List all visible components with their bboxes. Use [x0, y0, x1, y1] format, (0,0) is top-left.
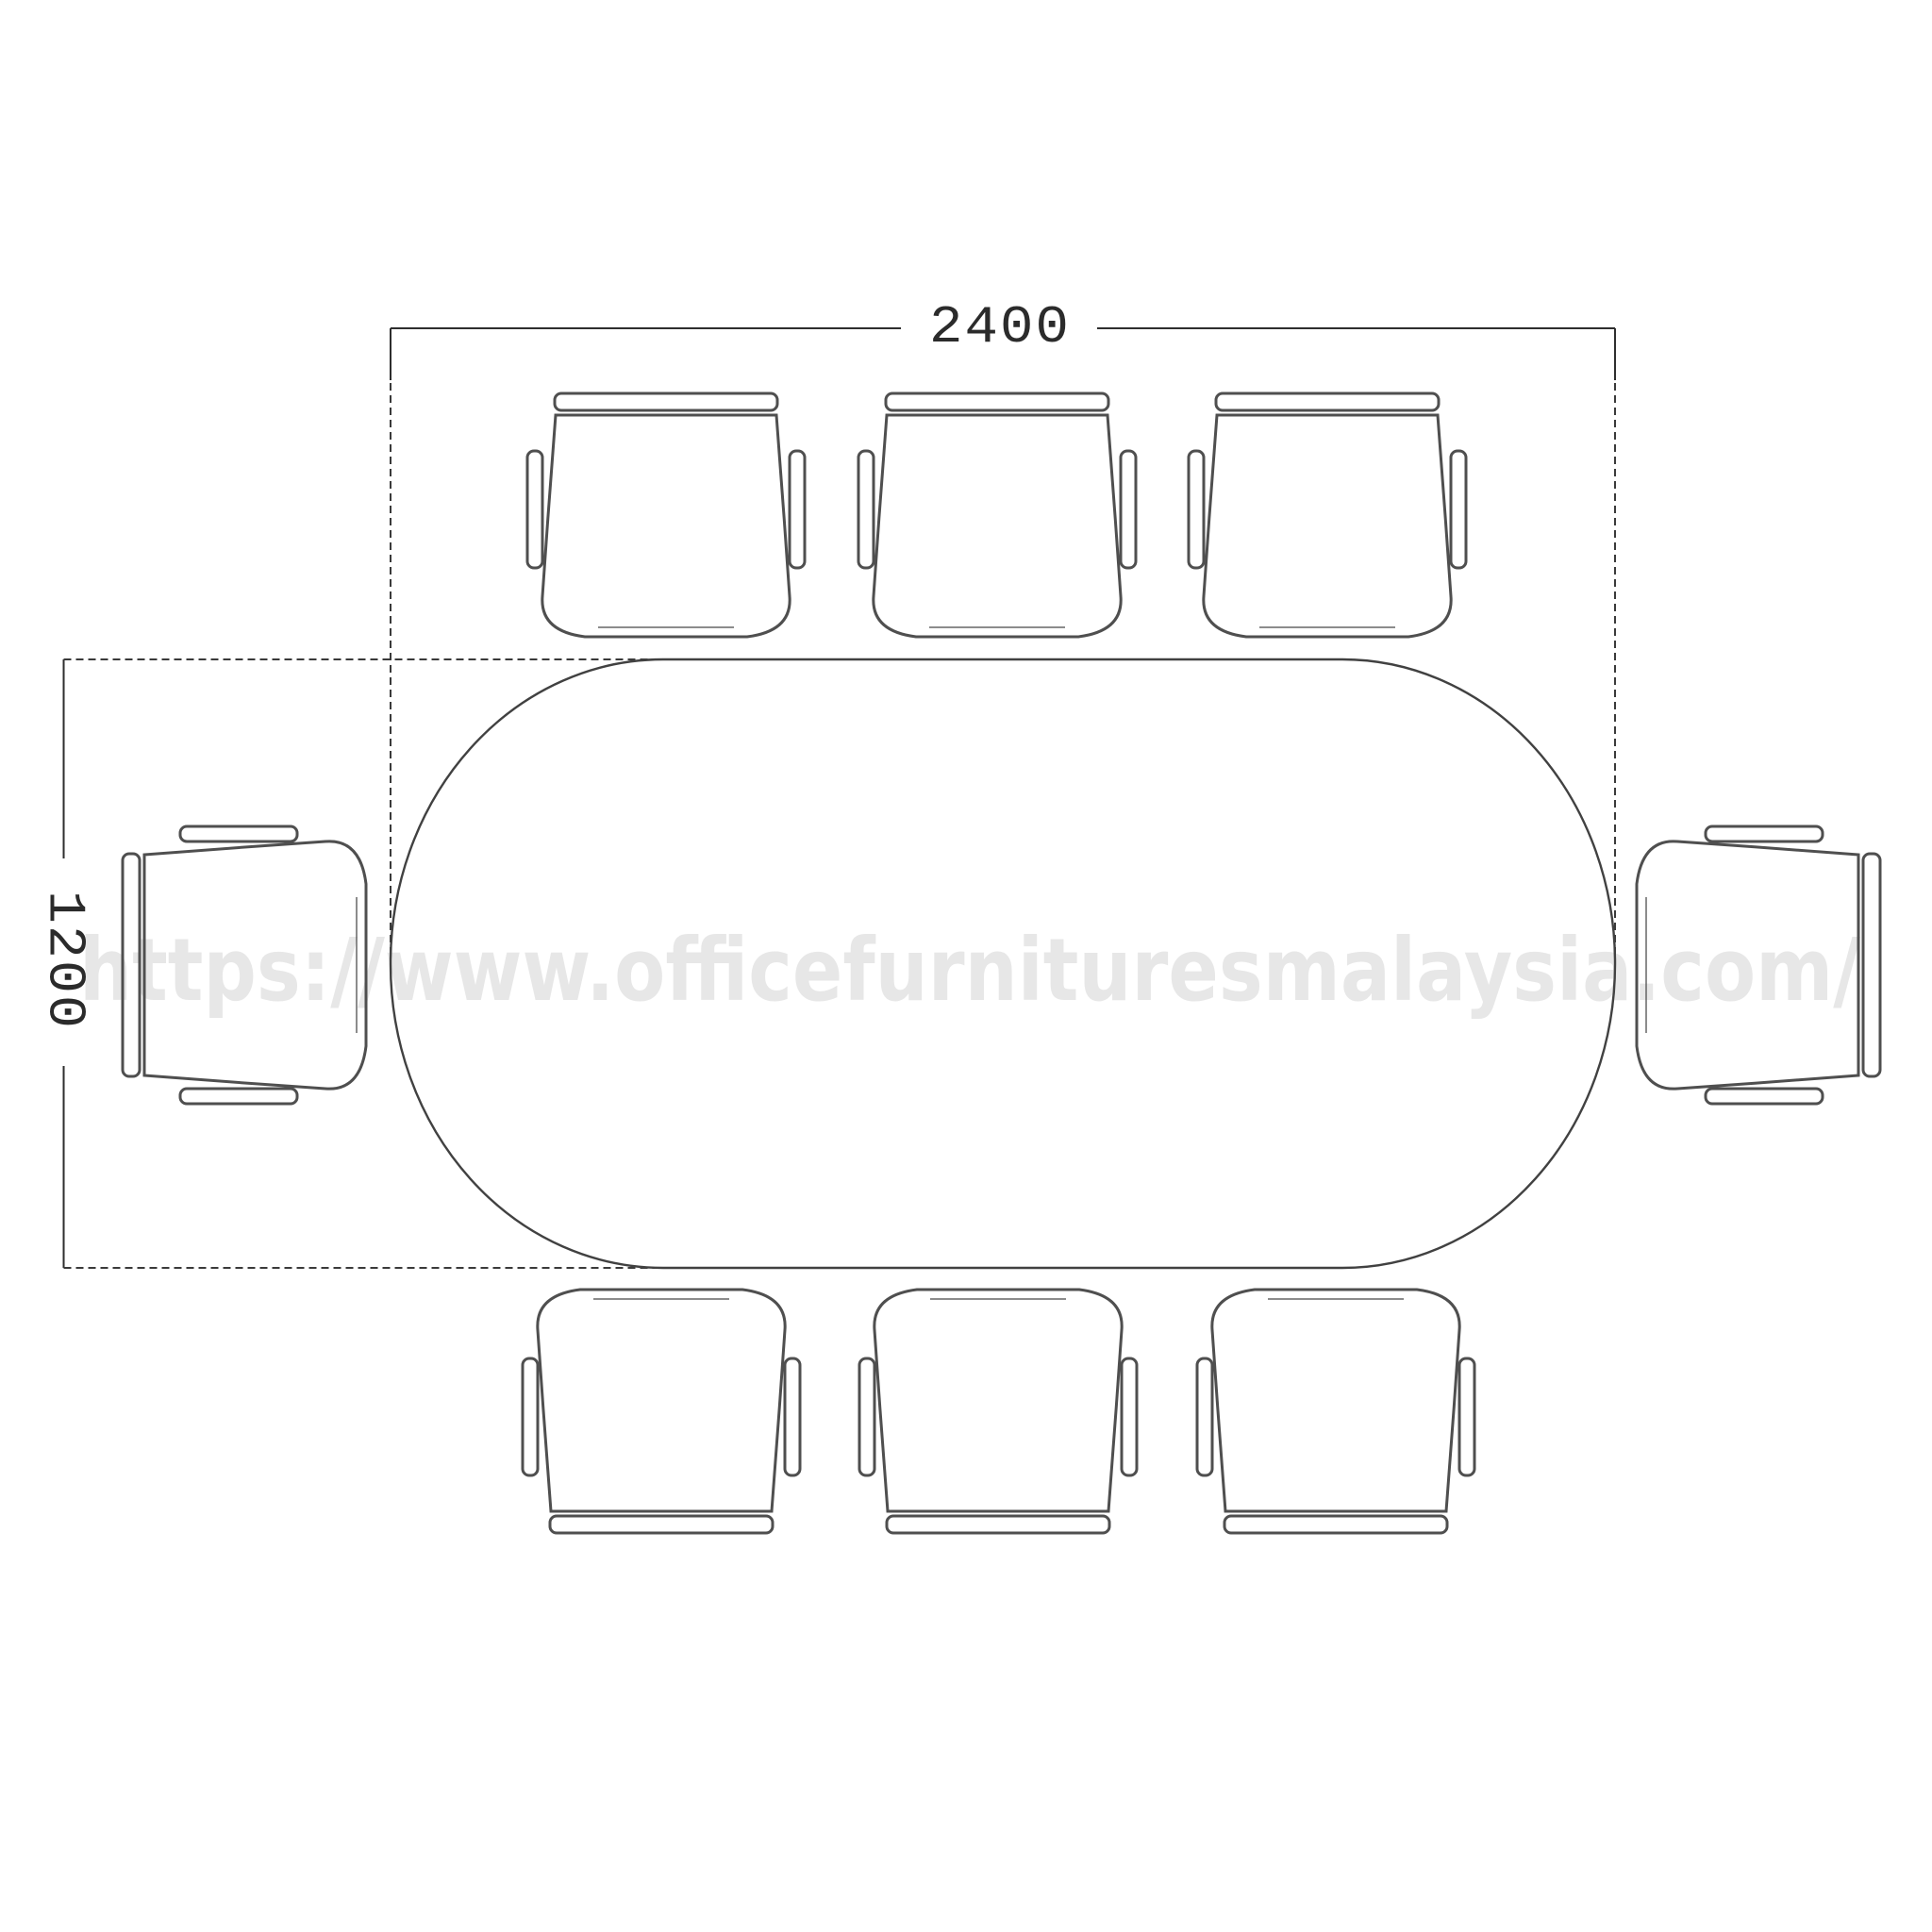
- floor-plan-page: https://www.officefurnituresmalaysia.com…: [0, 0, 1932, 1932]
- extension-lines: [64, 383, 1616, 1268]
- chair-bottom-2: [859, 1290, 1137, 1533]
- chair-top-2: [858, 393, 1136, 637]
- watermark-text: https://www.officefurnituresmalaysia.com…: [79, 920, 1860, 1021]
- chair-top-3: [1189, 393, 1466, 637]
- left-dimension-label: 1200: [35, 891, 95, 1030]
- chair-bottom-3: [1197, 1290, 1474, 1533]
- chair-top-1: [527, 393, 805, 637]
- floor-plan-diagram: https://www.officefurnituresmalaysia.com…: [0, 0, 1932, 1932]
- top-dimension: 2400: [391, 297, 1615, 380]
- left-dimension: 1200: [35, 659, 95, 1268]
- top-dimension-label: 2400: [929, 297, 1071, 358]
- chair-bottom-1: [523, 1290, 800, 1533]
